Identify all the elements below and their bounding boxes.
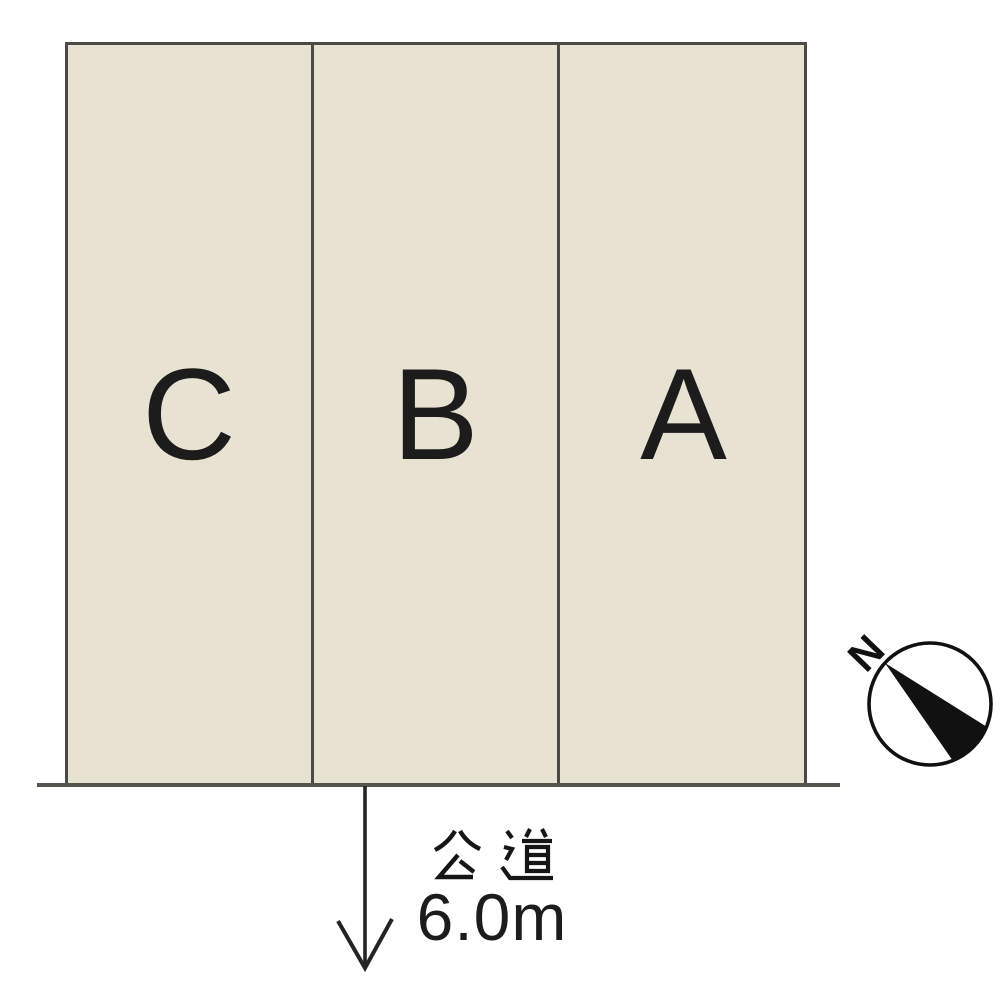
kanji-dou [502, 829, 553, 878]
road-boundary-line [37, 783, 840, 787]
lot-label: B [392, 349, 479, 479]
road-direction-arrow-icon [325, 786, 405, 976]
road-name-text [427, 826, 557, 884]
lot-b: B [314, 42, 557, 786]
kanji-kou [435, 831, 480, 877]
compass-north-icon: N [830, 615, 1000, 780]
lot-layout-diagram: C B A 6.0m [0, 0, 1000, 984]
compass-needle [885, 663, 987, 761]
lot-label: A [640, 349, 727, 479]
compass-north-label: N [839, 626, 894, 680]
lot-a: A [560, 42, 807, 786]
lot-c: C [65, 42, 313, 786]
lot-label: C [142, 349, 236, 479]
road-width-label: 6.0m [417, 884, 568, 950]
